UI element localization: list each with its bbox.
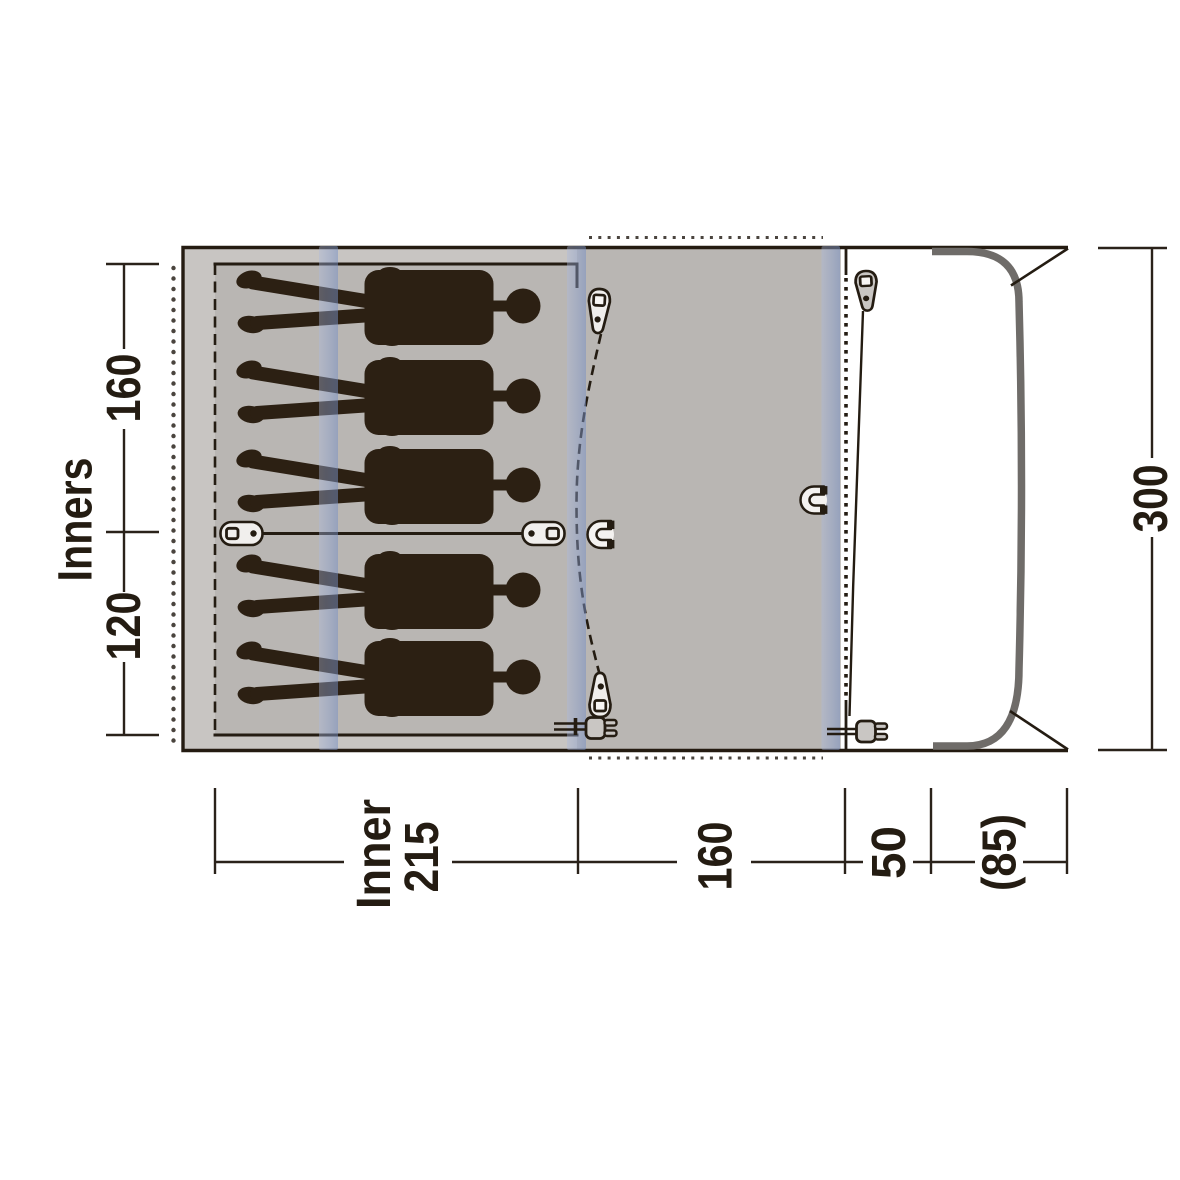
svg-text:(85): (85) [974,814,1027,891]
svg-text:160: 160 [690,822,743,891]
svg-text:215: 215 [396,822,449,893]
svg-text:Inners: Inners [50,458,103,582]
svg-text:120: 120 [98,592,151,661]
svg-text:300: 300 [1125,465,1178,533]
svg-text:Inner: Inner [348,799,401,909]
svg-text:160: 160 [98,354,151,423]
svg-text:50: 50 [863,826,916,879]
